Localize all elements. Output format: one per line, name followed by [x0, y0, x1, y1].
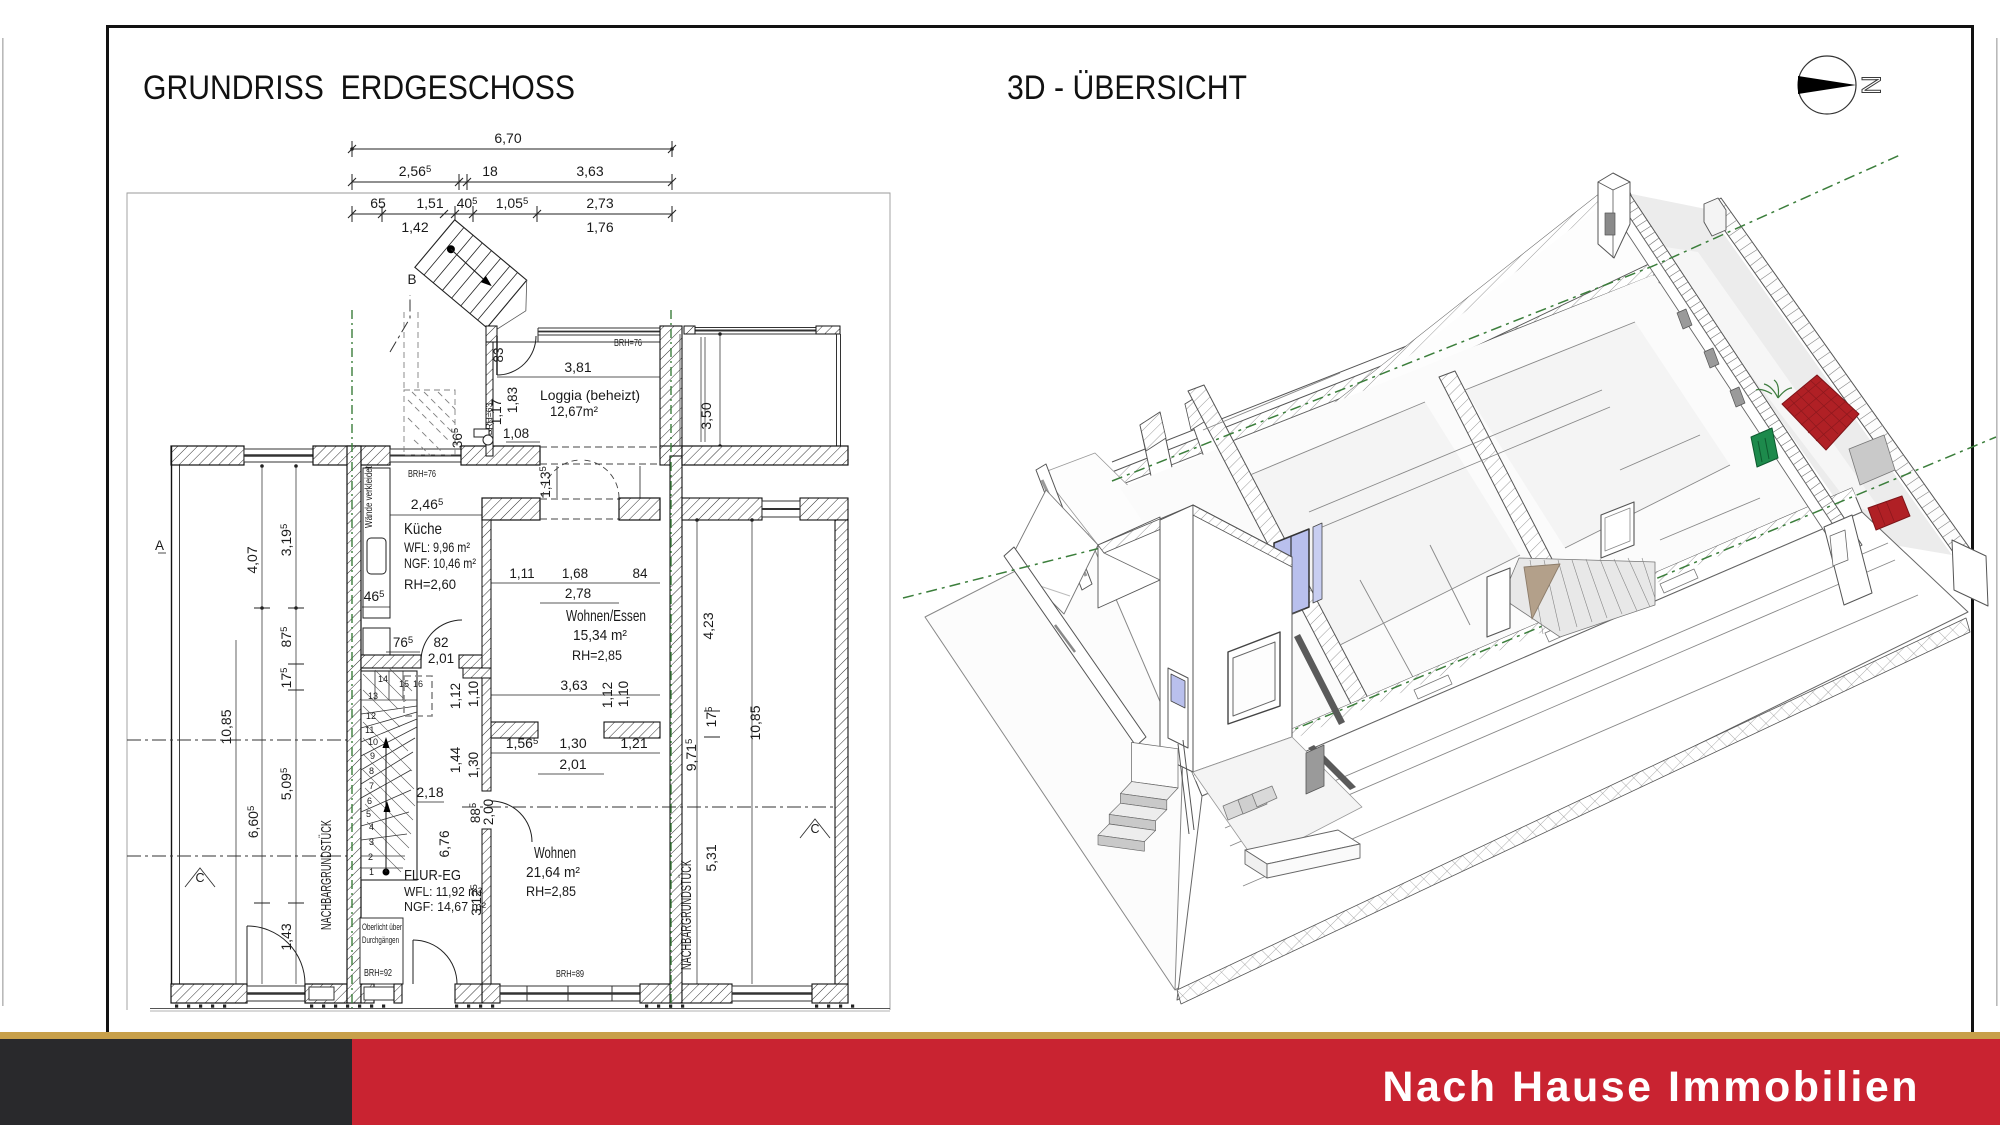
svg-text:RH=2,85: RH=2,85 — [526, 883, 576, 899]
svg-text:21,64 m²: 21,64 m² — [526, 865, 580, 881]
svg-text:1,08: 1,08 — [503, 426, 529, 441]
svg-text:2,73: 2,73 — [586, 195, 613, 211]
svg-text:Durchgängen: Durchgängen — [362, 935, 399, 945]
svg-text:B: B — [407, 272, 416, 287]
svg-text:6: 6 — [367, 796, 372, 806]
svg-text:1,44: 1,44 — [448, 746, 463, 773]
svg-text:3,81: 3,81 — [564, 359, 591, 375]
svg-text:1,83: 1,83 — [505, 387, 520, 413]
svg-text:WFL: 9,96 m²: WFL: 9,96 m² — [404, 539, 470, 555]
svg-text:2,01: 2,01 — [428, 651, 454, 666]
svg-text:3: 3 — [369, 837, 374, 847]
svg-text:RH=2,60: RH=2,60 — [404, 576, 456, 592]
svg-text:1,12: 1,12 — [448, 683, 463, 709]
svg-text:Wände verkleidet: Wände verkleidet — [364, 466, 375, 528]
svg-text:1,42: 1,42 — [401, 219, 428, 235]
svg-text:1,10: 1,10 — [466, 681, 481, 707]
svg-text:Nach Hause Immobilien: Nach Hause Immobilien — [1382, 1063, 1920, 1111]
svg-text:Wohnen/Essen: Wohnen/Essen — [566, 608, 646, 625]
svg-text:NACHBARGRUNDSTÜCK: NACHBARGRUNDSTÜCK — [677, 860, 695, 970]
svg-text:2,18: 2,18 — [416, 784, 443, 800]
svg-text:65: 65 — [370, 195, 386, 211]
svg-text:6,70: 6,70 — [494, 130, 521, 146]
svg-text:BRH=76: BRH=76 — [408, 469, 436, 480]
svg-text:18: 18 — [482, 163, 498, 179]
svg-text:84: 84 — [632, 566, 648, 581]
svg-text:1,10: 1,10 — [616, 681, 631, 707]
svg-text:FLUR-EG: FLUR-EG — [404, 868, 461, 884]
svg-text:2,01: 2,01 — [559, 756, 586, 772]
svg-text:5,31: 5,31 — [703, 844, 719, 871]
svg-text:NGF: 10,46 m²: NGF: 10,46 m² — [404, 555, 476, 571]
svg-text:BRH=76: BRH=76 — [614, 338, 642, 349]
svg-text:7: 7 — [369, 781, 374, 791]
svg-text:2,00: 2,00 — [481, 799, 496, 825]
svg-text:1,30: 1,30 — [559, 735, 586, 751]
svg-text:3,63: 3,63 — [560, 677, 587, 693]
svg-text:2: 2 — [368, 852, 373, 862]
svg-text:1: 1 — [369, 867, 374, 877]
svg-text:10,85: 10,85 — [218, 709, 234, 744]
svg-text:82: 82 — [433, 635, 448, 650]
svg-text:9: 9 — [370, 751, 375, 761]
svg-text:4,07: 4,07 — [244, 546, 260, 573]
svg-text:Oberlicht über: Oberlicht über — [362, 922, 402, 932]
svg-text:12: 12 — [366, 711, 376, 721]
svg-text:11: 11 — [365, 725, 374, 735]
svg-text:5: 5 — [366, 809, 371, 819]
svg-text:GRUNDRISS ERDGESCHOSS: GRUNDRISS ERDGESCHOSS — [143, 69, 575, 107]
svg-text:A: A — [155, 538, 164, 553]
svg-text:15,34 m²: 15,34 m² — [573, 628, 627, 644]
svg-text:83: 83 — [491, 347, 506, 362]
svg-text:C: C — [810, 822, 819, 836]
svg-text:BRH=92: BRH=92 — [364, 968, 392, 979]
svg-text:1,76: 1,76 — [586, 219, 613, 235]
svg-text:3D - ÜBERSICHT: 3D - ÜBERSICHT — [1007, 69, 1247, 107]
svg-text:RH=2,85: RH=2,85 — [572, 647, 622, 663]
svg-text:Küche: Küche — [404, 521, 442, 538]
svg-text:2,78: 2,78 — [565, 586, 591, 601]
svg-text:1,30: 1,30 — [466, 752, 481, 778]
svg-text:NACHBARGRUNDSTÜCK: NACHBARGRUNDSTÜCK — [317, 820, 335, 930]
svg-text:1,51: 1,51 — [416, 195, 443, 211]
svg-text:1,43: 1,43 — [278, 923, 294, 950]
svg-text:16: 16 — [413, 679, 423, 689]
svg-text:C: C — [195, 871, 204, 885]
svg-text:8: 8 — [369, 766, 374, 776]
svg-text:1,11: 1,11 — [509, 566, 534, 581]
svg-text:4: 4 — [369, 822, 374, 832]
svg-text:Wohnen: Wohnen — [534, 845, 576, 862]
svg-text:10: 10 — [368, 737, 378, 747]
svg-text:14: 14 — [378, 674, 388, 684]
svg-text:6,76: 6,76 — [436, 830, 452, 857]
svg-text:3,63: 3,63 — [576, 163, 603, 179]
svg-text:BRH=89: BRH=89 — [556, 969, 584, 980]
svg-text:3,50: 3,50 — [698, 402, 714, 429]
svg-text:1,21: 1,21 — [620, 735, 647, 751]
svg-text:4,23: 4,23 — [700, 612, 716, 639]
svg-text:10,85: 10,85 — [747, 705, 763, 740]
svg-text:Loggia (beheizt): Loggia (beheizt) — [540, 387, 640, 403]
svg-text:12,67m²: 12,67m² — [550, 403, 598, 419]
svg-text:13: 13 — [368, 691, 378, 701]
svg-text:1,12: 1,12 — [600, 682, 615, 708]
svg-text:1,68: 1,68 — [562, 566, 588, 581]
svg-text:N: N — [1856, 75, 1886, 95]
